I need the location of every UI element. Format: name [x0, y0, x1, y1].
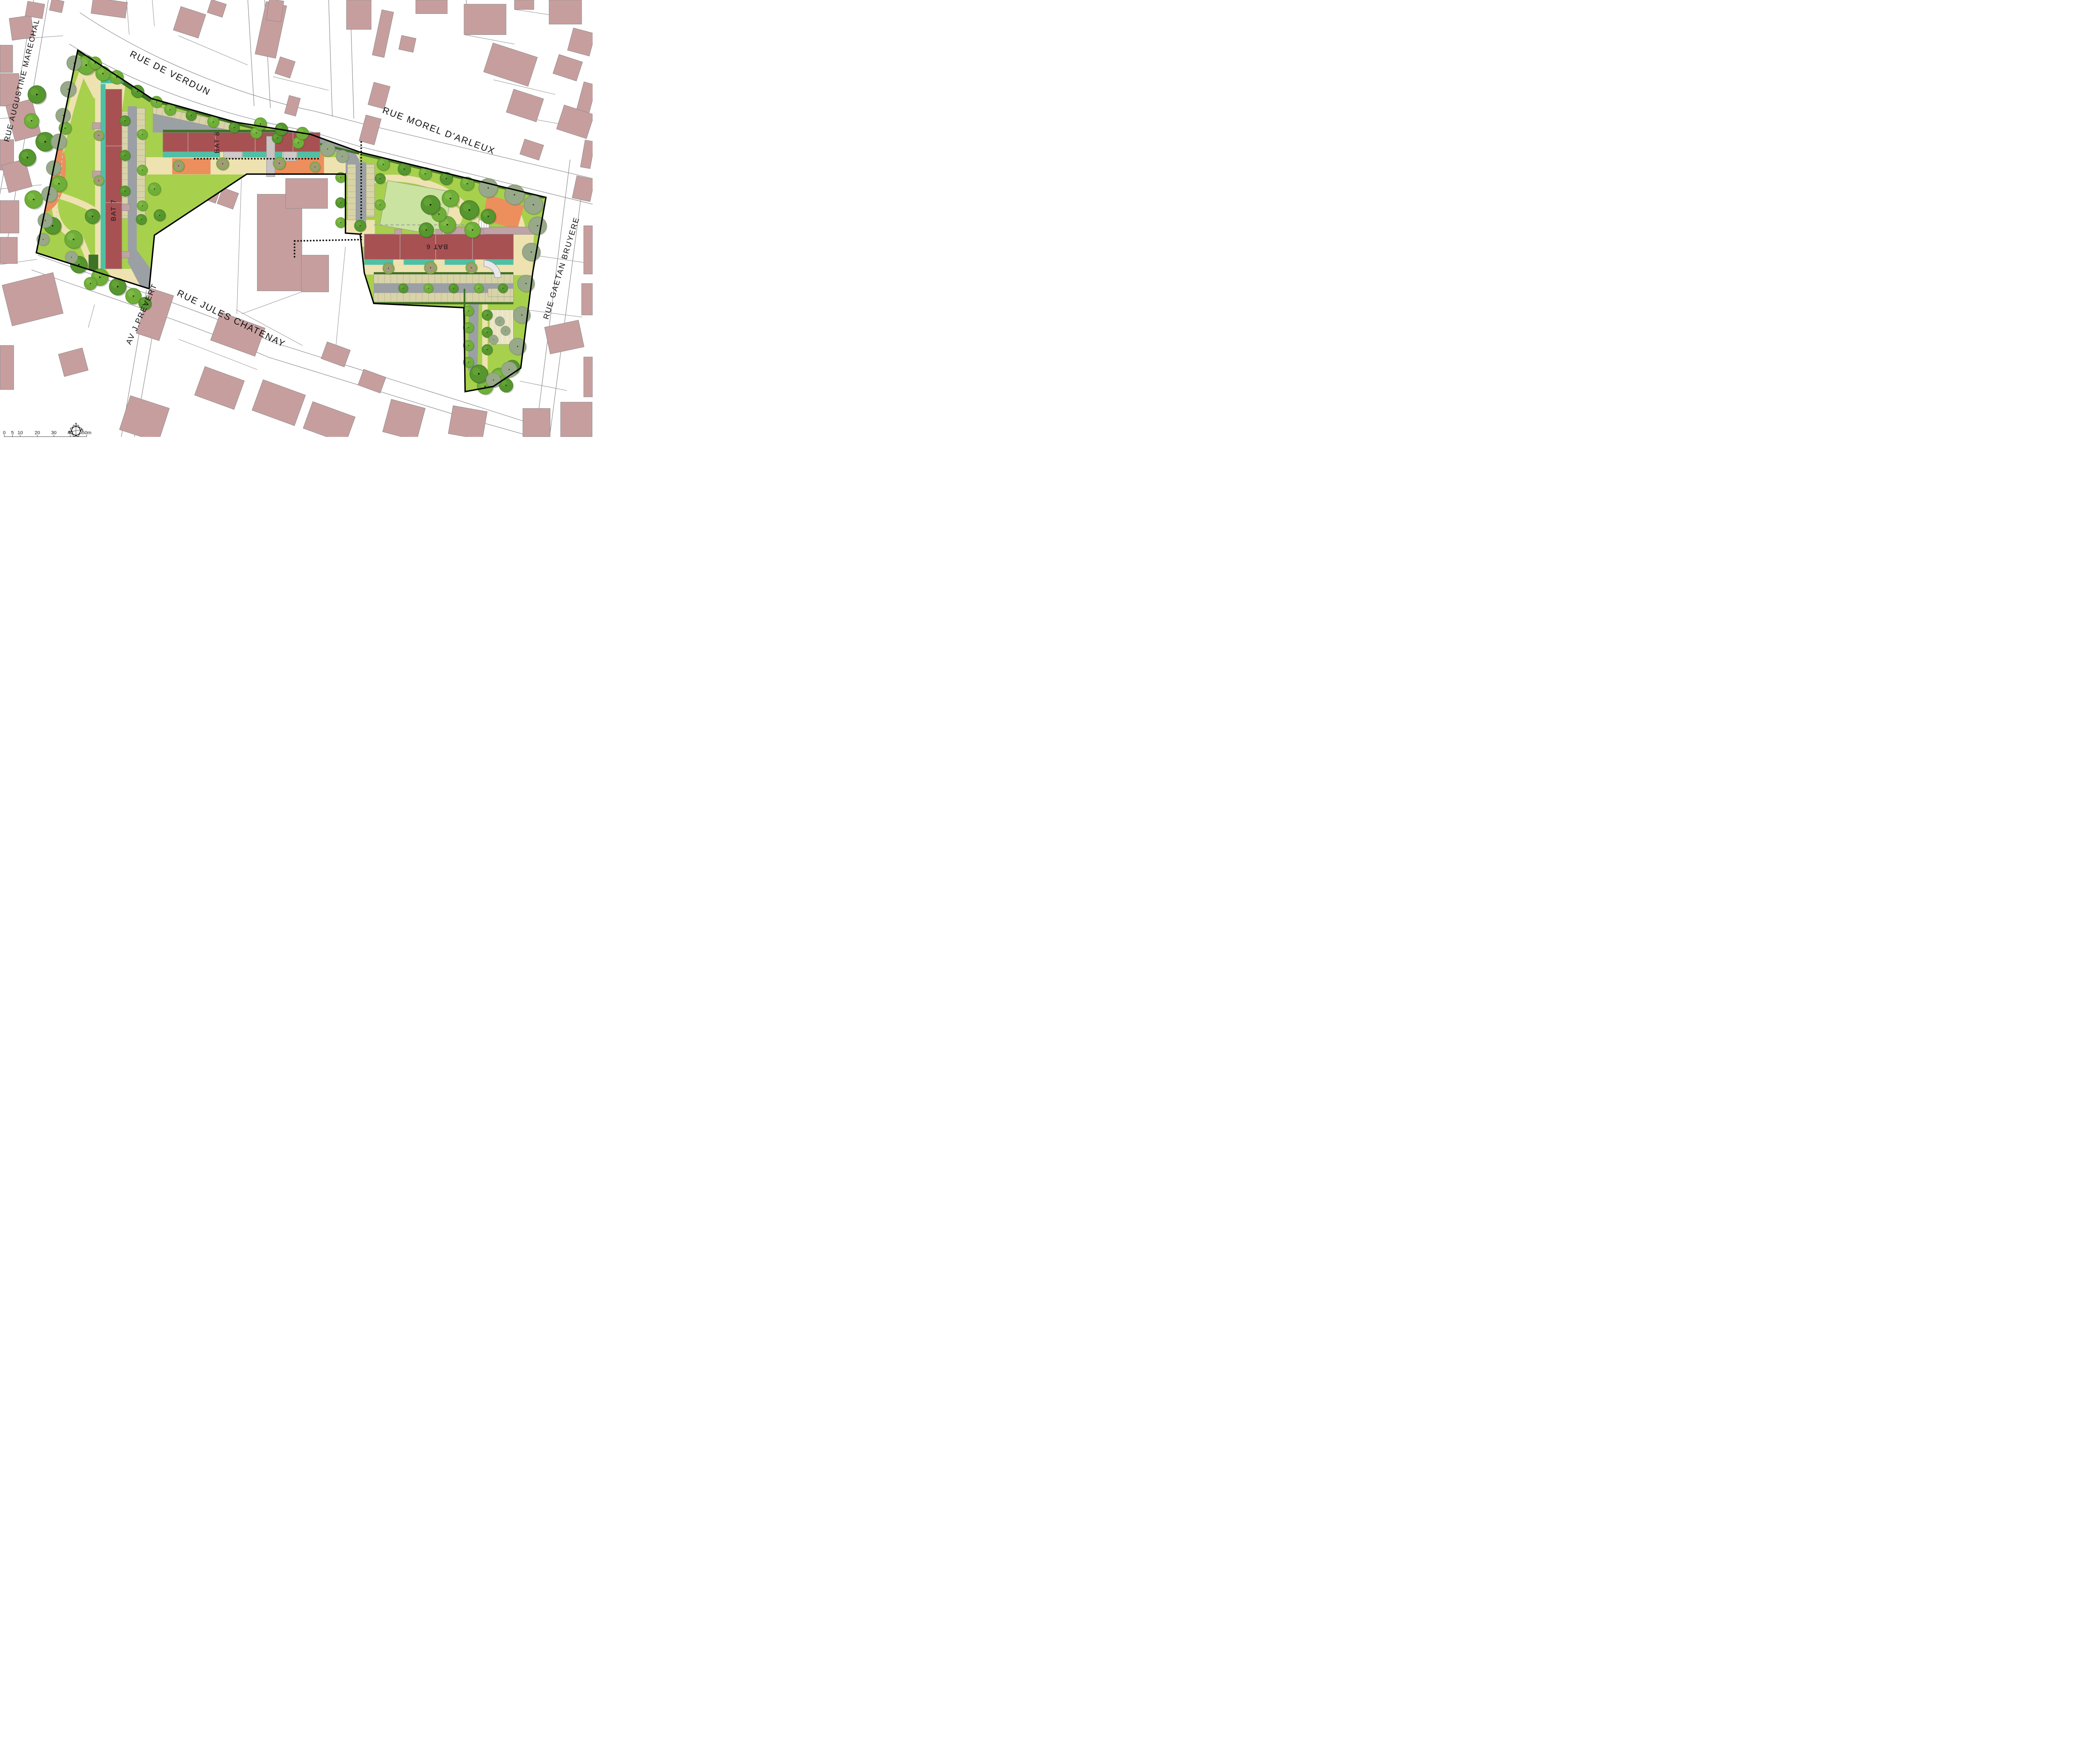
- existing-school-building: [257, 194, 302, 291]
- site-plan-map: RUE AUGUSTINE MARECHAL RUE DE VERDUN RUE…: [0, 0, 593, 437]
- bat7-building: [105, 89, 122, 268]
- scale-tick-10: 10: [18, 431, 23, 436]
- scale-tick-0: 0: [3, 431, 5, 436]
- scale-tick-20: 20: [35, 431, 40, 436]
- scale-tick-5: 5: [11, 431, 13, 436]
- scale-tick-30: 30: [51, 431, 57, 436]
- scale-tick-40: 40: [68, 431, 73, 436]
- bat6-access-deck: [445, 227, 535, 234]
- building-label-bat7: BAT 7: [110, 199, 118, 221]
- site-plan-page: RUE AUGUSTINE MARECHAL RUE DE VERDUN RUE…: [0, 0, 593, 437]
- building-label-bat6: BAT 6: [425, 243, 448, 250]
- compass-north-label: N: [75, 423, 77, 426]
- scale-tick-50m: 50m: [82, 431, 91, 436]
- building-label-bat8: BAT 8: [214, 131, 221, 153]
